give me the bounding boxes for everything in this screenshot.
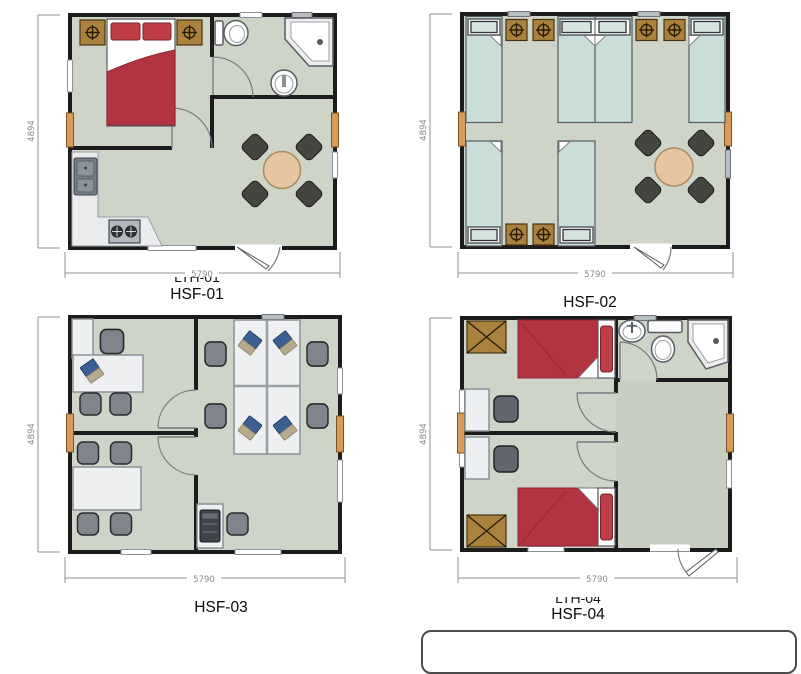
entry-door-swing xyxy=(678,549,686,572)
wall-vent-right xyxy=(332,113,339,147)
dim-width: 5790 xyxy=(586,575,608,585)
sink-drain xyxy=(84,184,87,187)
plan-hsf-01: 4894 5790 xyxy=(24,13,340,281)
office-chair xyxy=(205,404,226,428)
round-dining-table xyxy=(655,148,693,186)
wall-vent-left xyxy=(458,413,465,453)
plan1-title: HSF-01 xyxy=(142,287,252,303)
plan3-title: HSF-03 xyxy=(166,600,276,616)
plan-hsf-02: 4894 5790 xyxy=(416,12,733,281)
toilet-tank xyxy=(215,21,223,45)
office-chair xyxy=(307,342,328,366)
window-bottom xyxy=(528,547,564,552)
wall-panel-top xyxy=(292,13,312,18)
floorplan-sheet: 4894 5790 xyxy=(0,0,801,637)
pillow xyxy=(471,22,497,33)
window-right xyxy=(726,150,731,178)
wall-panel-top xyxy=(262,315,284,320)
wall-panel-top xyxy=(508,12,530,17)
toilet-tank xyxy=(648,321,682,333)
desk xyxy=(465,389,489,431)
pillow xyxy=(471,230,497,241)
cabinet xyxy=(72,319,93,358)
dim-height: 4894 xyxy=(419,119,429,141)
pillow xyxy=(143,23,171,40)
meeting-chair xyxy=(78,442,99,464)
dim-width: 5790 xyxy=(584,270,606,280)
window-right xyxy=(333,152,338,178)
dim-width: 5790 xyxy=(193,575,215,585)
wall-vent-left xyxy=(459,112,466,146)
pillow xyxy=(111,23,140,40)
plan4-cropped-label: LTH-04 xyxy=(523,597,633,605)
pillow xyxy=(599,22,626,33)
shower-drain xyxy=(317,39,323,45)
plan-hsf-03: 4894 5790 xyxy=(24,315,345,586)
pillow xyxy=(601,494,613,540)
office-chair xyxy=(307,404,328,428)
office-chair xyxy=(205,342,226,366)
window-bottom xyxy=(235,550,281,555)
round-dining-table xyxy=(264,152,301,189)
desk xyxy=(465,437,489,479)
basin-tap-icon xyxy=(282,78,286,87)
plan2-title: HSF-02 xyxy=(535,295,645,311)
meeting-chair xyxy=(78,513,99,535)
shower-drain xyxy=(713,338,719,344)
sink-drain xyxy=(84,167,87,170)
pillow xyxy=(562,22,591,33)
entry-door-opening xyxy=(630,244,672,251)
plan4-title: HSF-04 xyxy=(523,607,633,623)
printer-tray xyxy=(203,514,217,518)
window-bottom xyxy=(121,550,151,555)
window-right xyxy=(338,460,343,502)
meeting-chair xyxy=(111,442,132,464)
common-room-floor xyxy=(616,380,728,548)
plan1-cropped-label: LTH-01 xyxy=(142,277,252,284)
floorplan-drawing: 4894 5790 xyxy=(0,0,801,637)
meeting-chair xyxy=(111,513,132,535)
window-right xyxy=(338,368,343,394)
guest-chair xyxy=(110,393,131,415)
dim-height: 4894 xyxy=(419,423,429,445)
desk-chair xyxy=(494,446,518,472)
desk-chair xyxy=(100,329,123,353)
wall-panel-top xyxy=(638,12,660,17)
dim-height: 4894 xyxy=(27,120,37,142)
meeting-table xyxy=(73,467,141,510)
guest-chair xyxy=(80,393,101,415)
wall-vent-left xyxy=(67,113,74,147)
pillow xyxy=(601,326,613,372)
window-left xyxy=(68,60,73,92)
office-chair xyxy=(227,513,248,535)
basin-tap-icon xyxy=(282,75,286,79)
entry-door-opening xyxy=(650,545,690,552)
window-top xyxy=(240,13,262,18)
desk-chair xyxy=(494,396,518,422)
window-right xyxy=(727,460,732,488)
wall-vent-left xyxy=(67,414,74,452)
wall-vent-right xyxy=(727,414,734,452)
plan-hsf-04: 4894 5790 xyxy=(416,316,737,586)
wall-vent-right xyxy=(337,416,344,452)
doors xyxy=(630,244,672,271)
pillow xyxy=(694,22,720,33)
pillow xyxy=(563,230,590,241)
dim-height: 4894 xyxy=(27,423,37,445)
entry-door-leaf xyxy=(686,549,718,576)
